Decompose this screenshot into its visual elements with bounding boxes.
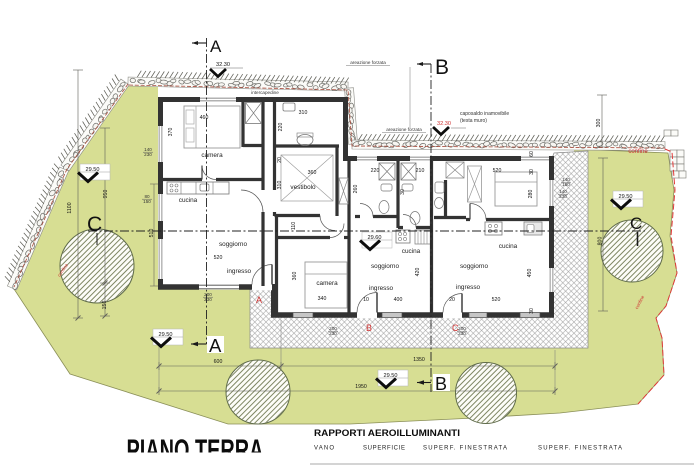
svg-text:150: 150 <box>562 182 570 187</box>
svg-text:B: B <box>435 374 447 394</box>
svg-text:30: 30 <box>400 189 406 195</box>
svg-text:30: 30 <box>529 308 535 314</box>
svg-text:intercapedine: intercapedine <box>251 90 279 95</box>
svg-text:230: 230 <box>204 297 212 302</box>
svg-text:VANO: VANO <box>314 446 334 452</box>
svg-text:340: 340 <box>318 296 327 302</box>
svg-text:230: 230 <box>144 152 152 157</box>
svg-text:caposaldo inamovibile: caposaldo inamovibile <box>460 111 509 117</box>
svg-text:32.30: 32.30 <box>437 121 451 127</box>
svg-text:600: 600 <box>214 359 223 365</box>
svg-text:ingresso: ingresso <box>369 285 394 292</box>
svg-text:SUPERF. FINESTRATA: SUPERF. FINESTRATA <box>538 446 622 452</box>
svg-text:520: 520 <box>214 255 223 261</box>
svg-text:220: 220 <box>278 123 284 132</box>
svg-text:230: 230 <box>329 331 337 336</box>
svg-text:camera: camera <box>316 280 338 287</box>
svg-text:ingresso: ingresso <box>456 284 481 291</box>
svg-text:150: 150 <box>143 199 151 204</box>
svg-text:30: 30 <box>529 169 535 175</box>
svg-text:A: A <box>210 37 222 56</box>
svg-text:450: 450 <box>527 269 533 278</box>
svg-text:220: 220 <box>371 168 380 174</box>
svg-text:C: C <box>87 213 102 236</box>
svg-text:SUPERF. FINESTRATA: SUPERF. FINESTRATA <box>423 446 507 452</box>
svg-text:cucina: cucina <box>402 248 421 255</box>
svg-text:360: 360 <box>308 170 317 176</box>
svg-text:460: 460 <box>200 115 209 121</box>
svg-text:camera: camera <box>201 152 223 159</box>
svg-text:cucina: cucina <box>179 197 198 204</box>
svg-text:20: 20 <box>277 157 283 163</box>
svg-text:210: 210 <box>416 168 425 174</box>
svg-text:confine: confine <box>628 149 648 155</box>
svg-text:SUPERFICIE: SUPERFICIE <box>363 446 405 452</box>
svg-text:800: 800 <box>598 237 604 246</box>
svg-text:20: 20 <box>449 297 455 303</box>
svg-text:310: 310 <box>277 181 283 190</box>
svg-text:soggiorno: soggiorno <box>460 263 489 270</box>
svg-text:260: 260 <box>353 185 359 194</box>
svg-text:1950: 1950 <box>355 384 367 390</box>
svg-text:RAPPORTI AEROILLUMINANTI: RAPPORTI AEROILLUMINANTI <box>314 428 460 439</box>
svg-text:230: 230 <box>458 331 466 336</box>
svg-text:1100: 1100 <box>67 202 73 213</box>
svg-text:950: 950 <box>103 190 109 199</box>
svg-text:A: A <box>209 335 222 356</box>
svg-text:soggiorno: soggiorno <box>371 263 400 270</box>
svg-text:280: 280 <box>528 190 534 199</box>
svg-text:520: 520 <box>493 168 502 174</box>
svg-text:vestibolo: vestibolo <box>290 184 316 191</box>
svg-text:1350: 1350 <box>413 357 425 363</box>
svg-text:ingresso: ingresso <box>227 268 252 275</box>
svg-text:C: C <box>452 323 459 333</box>
svg-text:110: 110 <box>291 222 297 230</box>
svg-text:C: C <box>630 214 642 233</box>
svg-text:areazione forzata: areazione forzata <box>386 127 422 132</box>
svg-text:B: B <box>435 56 449 79</box>
svg-text:360: 360 <box>292 272 298 281</box>
svg-text:(testa muro): (testa muro) <box>460 118 487 124</box>
svg-text:cucina: cucina <box>499 243 518 250</box>
svg-text:areazione forzata: areazione forzata <box>350 60 386 65</box>
svg-text:soggiorno: soggiorno <box>219 241 248 248</box>
svg-text:60: 60 <box>529 151 535 157</box>
svg-text:400: 400 <box>394 297 403 303</box>
svg-text:32.30: 32.30 <box>216 62 230 68</box>
svg-text:A: A <box>256 295 262 305</box>
svg-text:520: 520 <box>492 297 501 303</box>
svg-text:300: 300 <box>596 119 602 128</box>
svg-text:310: 310 <box>299 110 308 116</box>
svg-text:230: 230 <box>559 194 567 199</box>
svg-text:10: 10 <box>363 297 369 303</box>
svg-text:B: B <box>366 323 372 333</box>
svg-text:370: 370 <box>168 128 174 137</box>
svg-text:420: 420 <box>415 268 421 277</box>
